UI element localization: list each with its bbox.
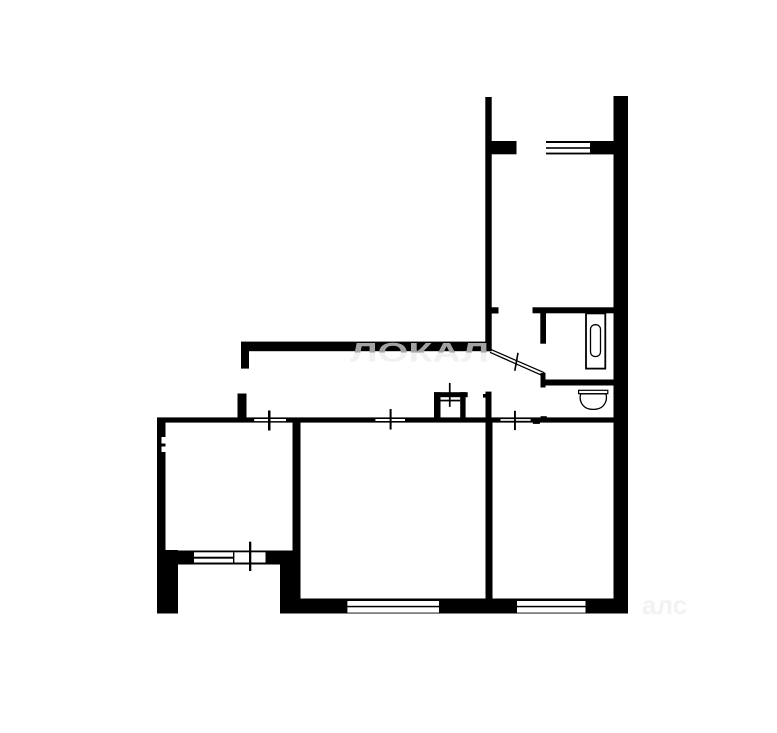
svg-text:алс: алс — [642, 590, 687, 620]
